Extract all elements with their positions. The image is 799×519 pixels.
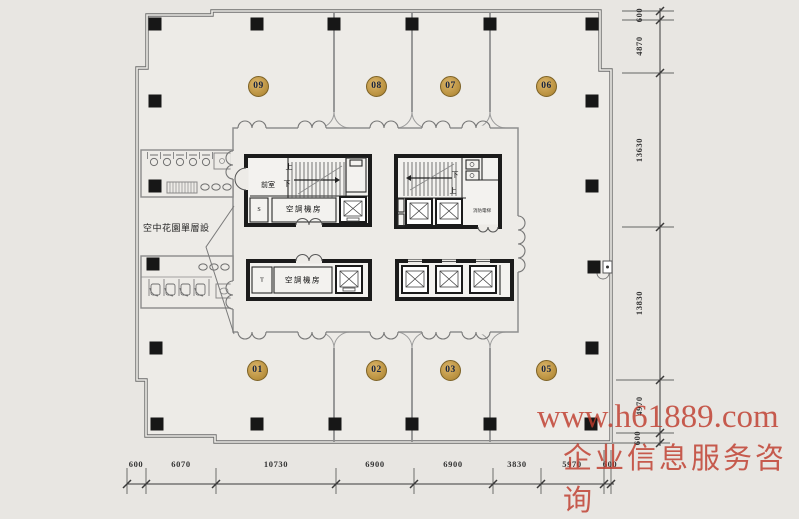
core-block-1 (235, 156, 370, 228)
fire-elevator-label: 消防電梯 (473, 208, 491, 214)
dim-bottom-10730: 10730 (264, 459, 288, 469)
dim-bottom-3830: 3830 (507, 459, 526, 469)
dim-bottom-6070: 6070 (171, 459, 190, 469)
dim-right-13630: 13630 (634, 138, 644, 162)
room-badge-08: 08 (366, 76, 387, 97)
room-badge-07: 07 (440, 76, 461, 97)
room-badge-01: 01 (247, 360, 268, 381)
floor-plan-canvas: 09 08 07 06 01 02 03 05 前室 上 下 下 上 空調機房 … (0, 0, 799, 495)
stair-up-label-1: 上 (286, 162, 293, 172)
room-badge-02: 02 (366, 360, 387, 381)
room-badge-03: 03 (440, 360, 461, 381)
stair-down-label-2: 下 (452, 170, 459, 180)
sky-garden-note: 空中花園單層設 (143, 221, 210, 234)
stair-up-label-2: 上 (450, 186, 457, 196)
front-room-label: 前室 (261, 180, 275, 190)
room-badge-05: 05 (536, 360, 557, 381)
room-badge-06: 06 (536, 76, 557, 97)
core-block-2 (396, 156, 500, 232)
room-s-label: S (257, 207, 260, 213)
dim-right-13830: 13830 (634, 291, 644, 315)
stair-down-label-1: 下 (284, 179, 291, 189)
ac-room-label-1: 空調機房 (286, 204, 322, 215)
watermark-company: 企业信息服务咨询 (563, 435, 799, 519)
dim-bottom-600a: 600 (129, 459, 144, 469)
watermark-url: www.h61889.com (537, 399, 779, 436)
room-badge-09: 09 (248, 76, 269, 97)
dim-bottom-6900b: 6900 (443, 459, 462, 469)
room-t-label: T (260, 277, 264, 284)
ac-room-label-2: 空調機房 (285, 275, 321, 286)
dim-right-600a: 600 (634, 8, 644, 23)
dim-right-4870: 4870 (634, 36, 644, 55)
core-block-4 (397, 260, 512, 300)
dim-bottom-6900a: 6900 (365, 459, 384, 469)
